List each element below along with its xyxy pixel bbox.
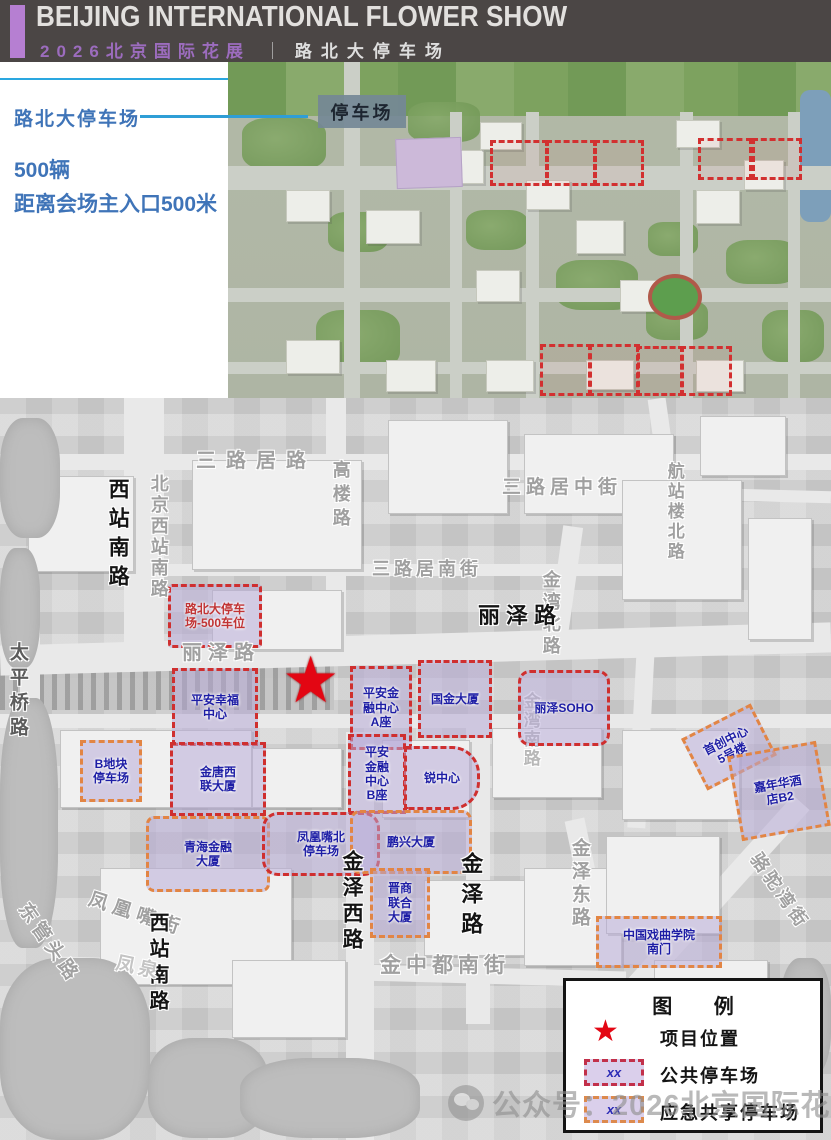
aerial-building — [286, 340, 340, 374]
zone-guojin-tower: 国金大厦 — [418, 660, 492, 738]
header-subtitle: 2026北京国际花展 ｜ 路北大停车场 — [40, 37, 451, 62]
zone-opera-academy-south-gate: 中国戏曲学院 南门 — [596, 916, 722, 968]
aerial-map: 停车场 — [228, 62, 831, 398]
zone-pingan-xingfu-center: 平安幸福 中心 — [172, 668, 258, 746]
aerial-red-dashed-plot — [636, 346, 684, 396]
zone-label: 青海金融 大厦 — [184, 840, 232, 869]
zone-lubei-parking: 路北大停车 场-500车位 — [168, 584, 262, 648]
zone-jinshang-united-tower: 晋商 联合 大厦 — [370, 868, 430, 938]
header: BEIJING INTERNATIONAL FLOWER SHOW 2026北京… — [0, 0, 831, 62]
aerial-violet-building — [395, 137, 463, 189]
aerial-red-dashed-plot — [680, 346, 732, 396]
zone-label: 平安幸福 中心 — [191, 693, 239, 722]
leader-line — [140, 115, 308, 118]
subtitle-section: 路北大停车场 — [295, 37, 451, 62]
aerial-building — [386, 360, 436, 392]
map-trees — [240, 1058, 420, 1138]
map-trees — [0, 418, 60, 538]
project-location-star-icon: ★ — [282, 648, 339, 712]
zone-plot-b-parking: B地块 停车场 — [80, 740, 142, 802]
road-lizelu-west: 丽泽路 — [182, 642, 260, 664]
watermark: 公众号：2026北京国际花展 — [448, 1082, 831, 1124]
legend-row-project: ★ 项目位置 — [566, 1019, 820, 1056]
aerial-red-dashed-plot — [594, 140, 644, 186]
aerial-red-dashed-plot — [698, 138, 752, 180]
zone-pingan-finance-b: 平安 金融 中心 B座 — [348, 734, 406, 814]
flower-show-parking-slide: BEIJING INTERNATIONAL FLOWER SHOW 2026北京… — [0, 0, 831, 1140]
aerial-red-dashed-plot — [588, 344, 640, 396]
page-title: BEIJING INTERNATIONAL FLOWER SHOW — [36, 1, 567, 34]
header-accent-bar — [10, 5, 25, 58]
aerial-red-dashed-plot — [752, 138, 802, 180]
panel-top-line — [0, 78, 228, 80]
aerial-green-patch — [466, 210, 528, 250]
road-taipingqiaolu: 太平桥路 — [6, 642, 27, 742]
road-xizhannanlu-north: 西站南路 — [106, 478, 129, 594]
zone-label: 丽泽SOHO — [534, 701, 593, 715]
road-sanlujunanjie: 三路居南街 — [372, 560, 482, 580]
watermark-text: 公众号：2026北京国际花展 — [492, 1082, 831, 1124]
aerial-red-dashed-plot — [490, 140, 548, 186]
map-trees — [0, 958, 150, 1140]
road-lizelu-east: 丽泽路 — [478, 604, 562, 628]
road-jinzelu: 金泽路 — [458, 852, 482, 942]
aerial-parking-label: 停车场 — [318, 95, 406, 128]
zone-jintang-xilian-tower: 金唐西 联大厦 — [170, 742, 266, 816]
zone-lize-soho: 丽泽SOHO — [518, 670, 610, 746]
zone-label: 金唐西 联大厦 — [200, 765, 236, 794]
aerial-river — [800, 90, 831, 222]
zone-pengxing-tower: 鹏兴大厦 — [350, 810, 472, 874]
top-section: 路北大停车场 500辆 距离会场主入口500米 停车场 — [0, 62, 831, 398]
zone-label: 平安金 融中心 A座 — [363, 686, 399, 729]
zone-label: 中国戏曲学院 南门 — [623, 928, 695, 957]
aerial-building — [286, 190, 330, 222]
aerial-red-dashed-plot — [546, 140, 596, 186]
distance-label: 距离会场主入口500米 — [14, 188, 217, 218]
zone-label: 国金大厦 — [431, 692, 479, 706]
zone-label: 路北大停车 场-500车位 — [185, 602, 245, 631]
capacity-label: 500辆 — [14, 154, 70, 184]
legend-symbol: xx — [607, 1065, 621, 1080]
zone-label: 凤凰嘴北 停车场 — [297, 830, 345, 859]
district-map: 三路居路 三路居中街 航站楼北路 西站南路 北京西站南路 高楼路 三路居南街 金… — [0, 398, 831, 1140]
road-beijingxizhannanlu: 北京西站南路 — [148, 474, 168, 600]
zone-label: 锐中心 — [424, 771, 460, 785]
legend-label: 项目位置 — [660, 1025, 740, 1051]
zone-label: 嘉年华酒 店B2 — [753, 773, 805, 810]
zone-rui-center: 锐中心 — [404, 746, 480, 810]
subtitle-divider: ｜ — [264, 37, 281, 62]
aerial-building — [366, 210, 420, 244]
aerial-building — [696, 190, 740, 224]
aerial-building — [486, 360, 534, 392]
road-jinzedonglu: 金泽东路 — [568, 838, 589, 930]
zone-label: 晋商 联合 大厦 — [388, 881, 412, 924]
site-name-label: 路北大停车场 — [14, 104, 140, 131]
aerial-red-dashed-plot — [540, 344, 592, 396]
map-building — [748, 518, 812, 640]
road-sanlujuzhongjie: 三路居中街 — [502, 478, 622, 499]
zone-label: 平安 金融 中心 B座 — [365, 745, 389, 803]
road-jinzexilu: 金泽西路 — [340, 850, 363, 954]
legend-star-icon: ★ — [592, 1017, 619, 1047]
map-building — [700, 416, 786, 476]
subtitle-cn: 2026北京国际花展 — [40, 37, 250, 62]
zone-carnival-hotel-b2: 嘉年华酒 店B2 — [727, 741, 831, 841]
zone-qinghai-finance-tower: 青海金融 大厦 — [146, 816, 270, 892]
map-building — [388, 420, 508, 514]
wechat-icon — [448, 1085, 484, 1121]
aerial-stadium — [648, 274, 702, 320]
road-gaoloulu: 高楼路 — [330, 460, 350, 532]
map-building — [232, 960, 346, 1038]
zone-label: 鹏兴大厦 — [387, 835, 435, 849]
road-hangzhanloubeilu: 航站楼北路 — [664, 462, 683, 562]
aerial-green-patch — [408, 102, 480, 142]
road-sanlujulu: 三路居路 — [196, 450, 316, 472]
aerial-building — [476, 270, 520, 302]
info-panel: 路北大停车场 500辆 距离会场主入口500米 — [0, 62, 228, 398]
aerial-building — [576, 220, 624, 254]
road-jinzhongdunanjie: 金中都南街 — [380, 954, 510, 977]
zone-label: B地块 停车场 — [93, 757, 129, 786]
aerial-green-patch — [242, 118, 326, 170]
